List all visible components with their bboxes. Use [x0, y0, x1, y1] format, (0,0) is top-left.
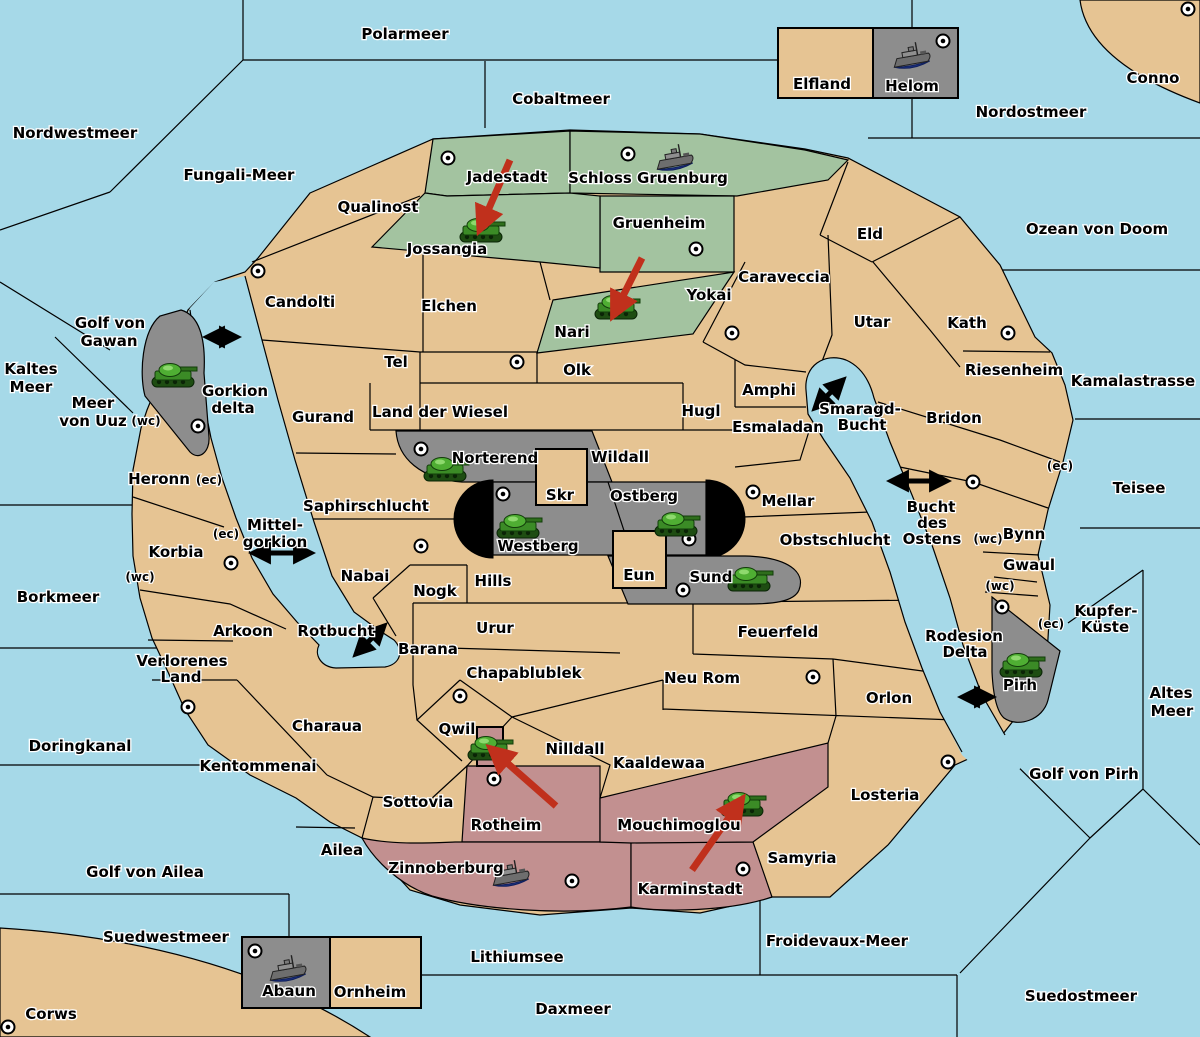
label-fungali-meer: Fungali-Meer: [184, 166, 295, 184]
town-marker: [415, 540, 428, 553]
label-polarmeer: Polarmeer: [361, 25, 449, 43]
label-meer: Meer: [10, 378, 53, 396]
label-froidevaux-meer: Froidevaux-Meer: [766, 932, 909, 950]
town-marker: [566, 875, 579, 888]
label-olk: Olk: [563, 361, 592, 379]
label-orlon: Orlon: [866, 689, 912, 707]
label-skr: Skr: [546, 486, 575, 504]
label-gorkion: Gorkion: [202, 382, 268, 400]
label-meer: Meer: [72, 394, 115, 412]
label-daxmeer: Daxmeer: [535, 1000, 611, 1018]
town-marker: [937, 35, 950, 48]
label-delta: Delta: [942, 643, 987, 661]
town-marker: [996, 601, 1009, 614]
label-golf-von-pirh: Golf von Pirh: [1029, 765, 1139, 783]
label-gwaul: Gwaul: [1003, 556, 1055, 574]
label-korbia: Korbia: [148, 543, 203, 561]
label-wildall: Wildall: [591, 448, 649, 466]
label-k-ste: Küste: [1081, 618, 1129, 636]
label-wc: (wc): [973, 532, 1002, 546]
label-caraveccia: Caraveccia: [738, 268, 830, 286]
town-marker: [497, 488, 510, 501]
label-corws: Corws: [25, 1005, 77, 1023]
town-marker: [942, 756, 955, 769]
label-borkmeer: Borkmeer: [17, 588, 100, 606]
label-land-der-wiesel: Land der Wiesel: [372, 403, 508, 421]
label-ostberg: Ostberg: [610, 487, 678, 505]
town-marker: [415, 443, 428, 456]
label-kaaldewaa: Kaaldewaa: [613, 754, 705, 772]
label-chapablublek: Chapablublek: [466, 664, 582, 682]
label-wc: (wc): [125, 570, 154, 584]
label-esmaladan: Esmaladan: [732, 418, 824, 436]
label-abaun: Abaun: [262, 982, 316, 1000]
label-kamalastrasse: Kamalastrasse: [1071, 372, 1195, 390]
label-tel: Tel: [384, 353, 408, 371]
label-qwil: Qwil: [439, 720, 476, 738]
label-ostens: Ostens: [903, 530, 962, 548]
label-gawan: Gawan: [80, 332, 137, 350]
label-ornheim: Ornheim: [334, 983, 406, 1001]
label-bynn: Bynn: [1003, 525, 1046, 543]
label-wc: (wc): [985, 579, 1014, 593]
label-nordwestmeer: Nordwestmeer: [13, 124, 138, 142]
label-jadestadt: Jadestadt: [466, 168, 548, 186]
label-neu-rom: Neu Rom: [664, 669, 740, 687]
label-losteria: Losteria: [851, 786, 920, 804]
label-von-uuz: von Uuz: [59, 412, 127, 430]
label-eun: Eun: [623, 566, 655, 584]
label-ailea: Ailea: [321, 841, 363, 859]
label-charaua: Charaua: [292, 717, 362, 735]
label-lithiumsee: Lithiumsee: [470, 948, 563, 966]
label-nordostmeer: Nordostmeer: [976, 103, 1087, 121]
town-marker: [225, 557, 238, 570]
label-wc: (wc): [131, 414, 160, 428]
label-helom: Helom: [885, 77, 939, 95]
label-ec: (ec): [213, 527, 239, 541]
label-westberg: Westberg: [497, 537, 578, 555]
label-rotheim: Rotheim: [471, 816, 542, 834]
label-nilldall: Nilldall: [545, 740, 604, 758]
label-bucht: Bucht: [838, 416, 887, 434]
map-canvas[interactable]: PolarmeerCobaltmeerNordwestmeerFungali-M…: [0, 0, 1200, 1037]
label-ozean-von-doom: Ozean von Doom: [1026, 220, 1168, 238]
label-arkoon: Arkoon: [213, 622, 273, 640]
town-marker: [488, 773, 501, 786]
town-marker: [1182, 3, 1195, 16]
town-marker: [807, 671, 820, 684]
label-kath: Kath: [947, 314, 987, 332]
label-conno: Conno: [1127, 69, 1180, 87]
game-map: PolarmeerCobaltmeerNordwestmeerFungali-M…: [0, 0, 1200, 1037]
town-marker: [252, 265, 265, 278]
label-elfland: Elfland: [793, 75, 851, 93]
label-samyria: Samyria: [768, 849, 837, 867]
label-gorkion: gorkion: [243, 533, 308, 551]
town-marker: [690, 243, 703, 256]
label-ec: (ec): [196, 473, 222, 487]
label-zinnoberburg: Zinnoberburg: [388, 859, 504, 877]
town-marker: [967, 476, 980, 489]
label-obstschlucht: Obstschlucht: [780, 531, 891, 549]
territory-gruenheim: [600, 196, 734, 272]
town-marker: [677, 584, 690, 597]
label-elchen: Elchen: [421, 297, 477, 315]
label-cobaltmeer: Cobaltmeer: [512, 90, 610, 108]
label-barana: Barana: [398, 640, 458, 658]
town-marker: [1002, 327, 1015, 340]
label-kaltes: Kaltes: [4, 360, 57, 378]
label-feuerfeld: Feuerfeld: [738, 623, 819, 641]
label-ec: (ec): [1038, 617, 1064, 631]
town-marker: [454, 690, 467, 703]
town-marker: [622, 148, 635, 161]
label-mellar: Mellar: [762, 492, 816, 510]
label-sottovia: Sottovia: [383, 793, 454, 811]
label-mittel: Mittel-: [247, 516, 303, 534]
label-kentommenai: Kentommenai: [199, 757, 316, 775]
town-marker: [737, 863, 750, 876]
label-candolti: Candolti: [265, 293, 335, 311]
label-karminstadt: Karminstadt: [638, 880, 743, 898]
town-marker: [249, 945, 262, 958]
label-amphi: Amphi: [742, 381, 796, 399]
label-golf-von-ailea: Golf von Ailea: [86, 863, 204, 881]
label-norterend: Norterend: [452, 449, 539, 467]
label-delta: delta: [211, 399, 254, 417]
town-marker: [182, 701, 195, 714]
label-urur: Urur: [476, 619, 514, 637]
label-suedostmeer: Suedostmeer: [1025, 987, 1138, 1005]
label-riesenheim: Riesenheim: [965, 361, 1063, 379]
label-hills: Hills: [475, 572, 512, 590]
label-hugl: Hugl: [681, 402, 720, 420]
label-nabai: Nabai: [341, 567, 390, 585]
label-land: Land: [160, 668, 201, 686]
town-marker: [726, 327, 739, 340]
label-utar: Utar: [854, 313, 891, 331]
town-marker: [747, 486, 760, 499]
label-altes: Altes: [1149, 684, 1192, 702]
label-jossangia: Jossangia: [406, 240, 488, 258]
town-marker: [442, 152, 455, 165]
label-meer: Meer: [1151, 702, 1194, 720]
town-marker: [192, 420, 205, 433]
label-yokai: Yokai: [685, 286, 731, 304]
label-gruenheim: Gruenheim: [613, 214, 706, 232]
label-nogk: Nogk: [413, 582, 458, 600]
label-qualinost: Qualinost: [338, 198, 419, 216]
town-marker: [2, 1021, 15, 1034]
town-marker: [511, 356, 524, 369]
label-saphirschlucht: Saphirschlucht: [303, 497, 429, 515]
label-golf-von: Golf von: [75, 314, 145, 332]
label-rotbucht: Rotbucht: [297, 622, 374, 640]
label-bridon: Bridon: [926, 409, 982, 427]
label-ec: (ec): [1047, 459, 1073, 473]
label-mouchimoglou: Mouchimoglou: [617, 816, 740, 834]
label-suedwestmeer: Suedwestmeer: [103, 928, 229, 946]
label-heronn: Heronn: [128, 470, 190, 488]
label-nari: Nari: [554, 323, 589, 341]
label-sund: Sund: [690, 568, 733, 586]
label-gurand: Gurand: [292, 408, 354, 426]
label-pirh: Pirh: [1003, 676, 1037, 694]
label-schloss-gruenburg: Schloss Gruenburg: [568, 169, 728, 187]
label-teisee: Teisee: [1113, 479, 1166, 497]
label-doringkanal: Doringkanal: [29, 737, 132, 755]
label-eld: Eld: [857, 225, 883, 243]
